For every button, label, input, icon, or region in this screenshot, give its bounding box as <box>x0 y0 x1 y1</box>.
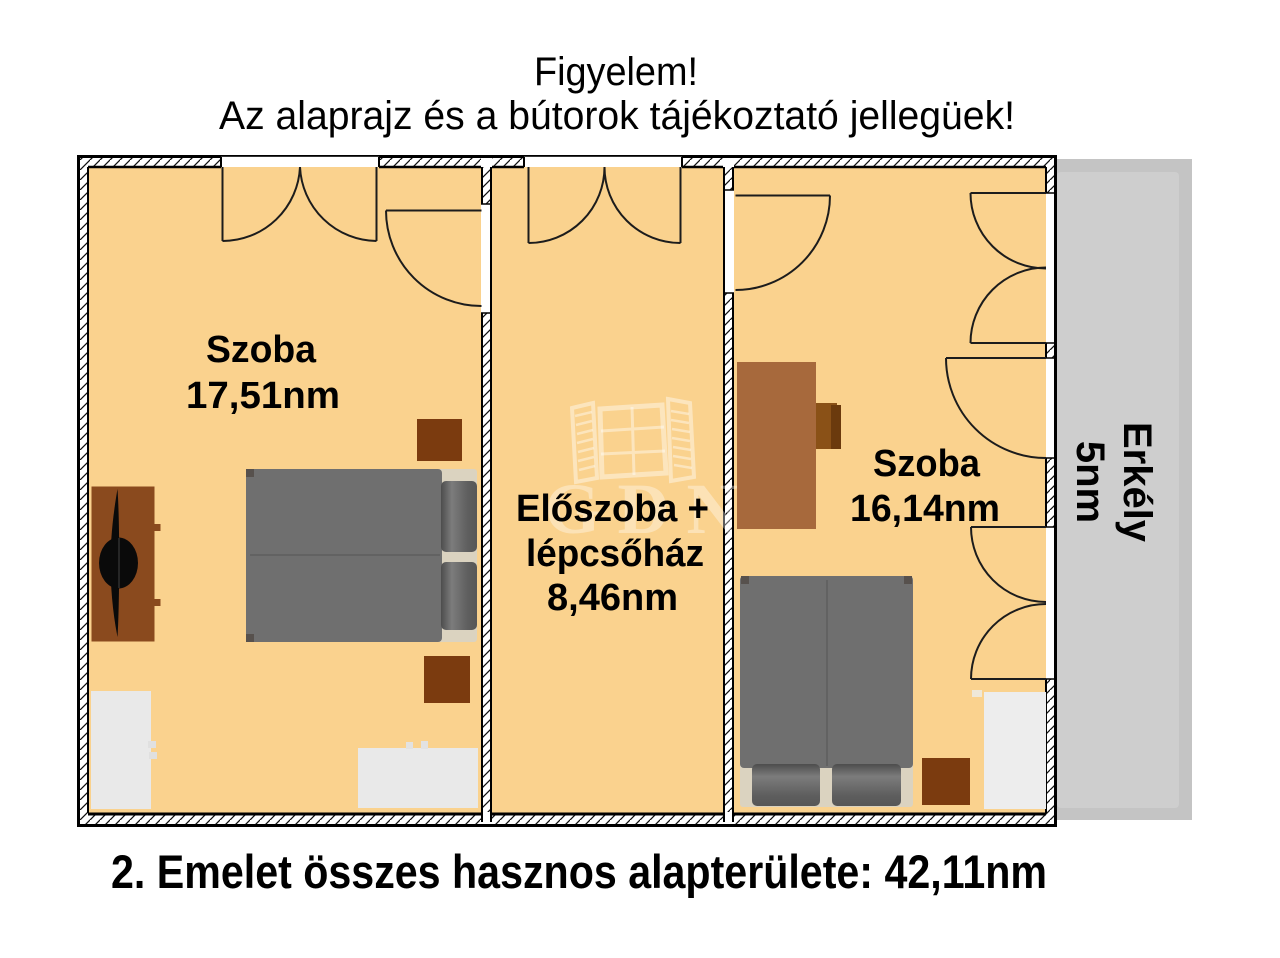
svg-text:8,46nm: 8,46nm <box>547 577 678 619</box>
svg-text:17,51nm: 17,51nm <box>186 375 340 417</box>
svg-text:Szoba: Szoba <box>206 329 317 371</box>
svg-text:Az alaprajz és a bútorok tájék: Az alaprajz és a bútorok tájékoztató jel… <box>219 94 1015 138</box>
svg-text:2. Emelet összes hasznos alapt: 2. Emelet összes hasznos alapterülete: 4… <box>111 845 1047 898</box>
svg-text:5nm: 5nm <box>1068 441 1112 523</box>
svg-text:16,14nm: 16,14nm <box>850 488 1000 530</box>
svg-text:Szoba: Szoba <box>873 443 981 485</box>
svg-text:Figyelem!: Figyelem! <box>534 50 698 94</box>
svg-text:Előszoba +: Előszoba + <box>516 488 709 530</box>
svg-text:Erkély: Erkély <box>1115 422 1159 543</box>
svg-text:lépcsőház: lépcsőház <box>526 533 704 575</box>
